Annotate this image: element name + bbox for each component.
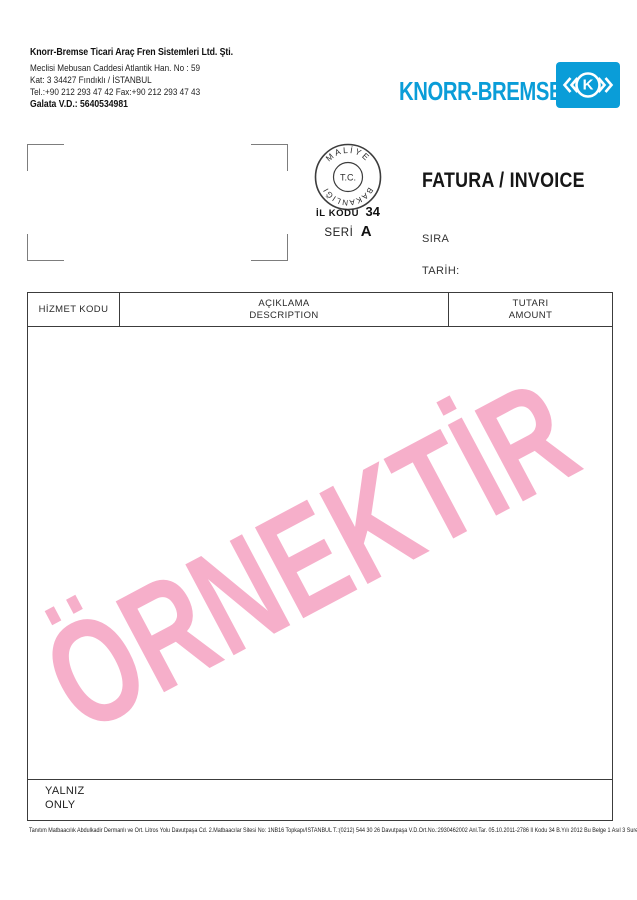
header-tutari: TUTARI AMOUNT [449, 293, 612, 326]
seri-value: A [361, 223, 372, 240]
company-address-line-1: Meclisi Mebusan Caddesi Atlantik Han. No… [30, 62, 233, 74]
printer-fine-print: Tanıtım Matbaacılık Abdulkadir Dermanlı … [29, 828, 637, 834]
header-hizmet-kodu-line1: HİZMET KODU [39, 304, 109, 316]
address-corner-mark-bottom-right [251, 234, 288, 261]
stamp-top-text: MALİYE [324, 145, 373, 164]
only-label: ONLY [45, 799, 612, 813]
company-address-line-2: Kat: 3 34427 Fındıklı / İSTANBUL [30, 74, 233, 86]
header-hizmet-kodu: HİZMET KODU [28, 293, 120, 326]
brand-wordmark: KNORR-BREMSE [399, 76, 562, 107]
table-body-empty-area [28, 327, 612, 779]
header-aciklama: AÇIKLAMA DESCRIPTION [120, 293, 449, 326]
tarih-label: TARİH: [422, 265, 460, 277]
il-kodu-value: 34 [366, 204, 380, 219]
company-name: Knorr-Bremse Ticari Araç Fren Sistemleri… [30, 47, 233, 58]
header-aciklama-line2: DESCRIPTION [249, 310, 318, 322]
seri-line: SERİ A [296, 223, 400, 241]
sira-label: SIRA [422, 233, 449, 245]
invoice-title: FATURA / INVOICE [422, 169, 585, 193]
address-corner-mark-top-right [251, 144, 288, 171]
company-header: Knorr-Bremse Ticari Araç Fren Sistemleri… [30, 47, 233, 110]
header-tutari-line1: TUTARI [513, 298, 549, 310]
brand-k-badge-icon: K [556, 62, 620, 108]
table-footer-row: YALNIZ ONLY [28, 779, 612, 820]
seri-label: SERİ [324, 227, 353, 239]
table-header-row: HİZMET KODU AÇIKLAMA DESCRIPTION TUTARI … [28, 293, 612, 327]
emblem-letter: K [583, 76, 594, 93]
header-tutari-line2: AMOUNT [509, 310, 553, 322]
company-tax-line: Galata V.D.: 5640534981 [30, 99, 233, 110]
invoice-table: HİZMET KODU AÇIKLAMA DESCRIPTION TUTARI … [27, 292, 613, 821]
yalniz-label: YALNIZ [45, 785, 612, 799]
header-aciklama-line1: AÇIKLAMA [258, 298, 309, 310]
svg-text:MALİYE: MALİYE [324, 145, 373, 164]
il-kodu-label: İL KODU [316, 208, 359, 219]
address-corner-mark-bottom-left [27, 234, 64, 261]
address-corner-mark-top-left [27, 144, 64, 171]
company-phone-line: Tel.:+90 212 293 47 42 Fax:+90 212 293 4… [30, 86, 233, 98]
il-kodu-line: İL KODU 34 [296, 203, 400, 221]
stamp-center-text: T.C. [340, 172, 356, 182]
